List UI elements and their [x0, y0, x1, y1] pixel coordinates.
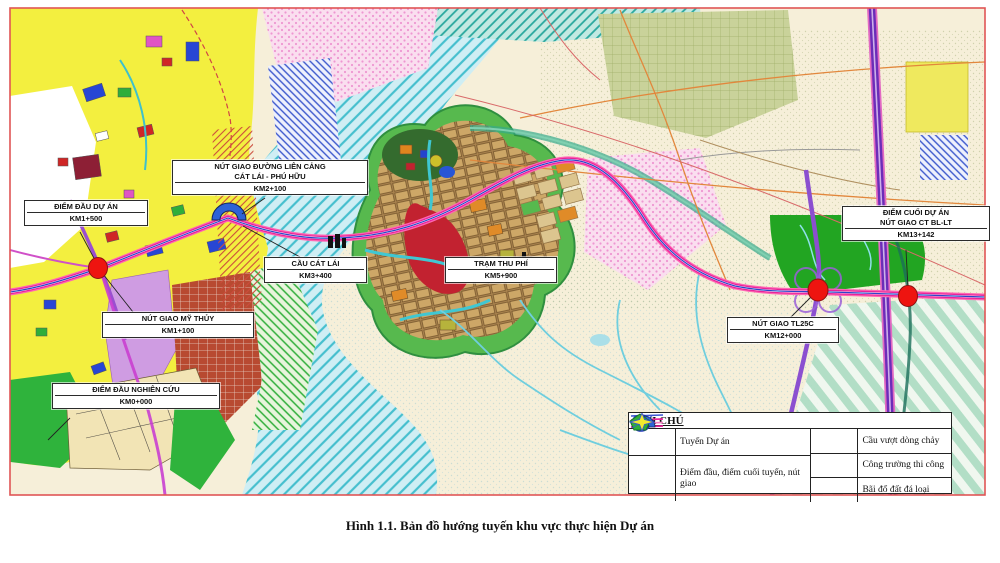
label-diem-cuoi-du-an: ĐIỂM CUỐI DỰ ÁN NÚT GIAO CT BL-LT KM13+1…	[842, 206, 990, 241]
node-tl25c	[808, 279, 828, 301]
legend-row-site: Công trường thi công	[811, 454, 951, 478]
legend-label: Điểm đầu, điểm cuối tuyến, nút giao	[676, 467, 810, 491]
label-cau-cat-lai: CẦU CÁT LÁI KM3+400	[264, 257, 367, 283]
label-km: KM0+000	[55, 396, 217, 407]
label-nut-giao-my-thuy: NÚT GIAO MỸ THỦY KM1+100	[102, 312, 254, 338]
label-tram-thu-phi: TRẠM THU PHÍ KM5+900	[445, 257, 557, 283]
label-text: CẦU CÁT LÁI	[267, 259, 364, 270]
label-km: KM5+900	[448, 270, 554, 281]
label-text: ĐIỂM ĐẦU DỰ ÁN	[27, 202, 145, 213]
pentagon-icon	[811, 454, 858, 477]
label-text: ĐIỂM ĐẦU NGHIÊN CỨU	[55, 385, 217, 396]
label-km: KM3+400	[267, 270, 364, 281]
label-text: CÁT LÁI - PHÚ HỮU	[175, 172, 365, 183]
red-dot-icon	[629, 456, 676, 501]
legend-label: Cầu vượt dòng chảy	[858, 435, 951, 448]
label-km: KM1+500	[27, 213, 145, 224]
label-diem-dau-du-an: ĐIỂM ĐẦU DỰ ÁN KM1+500	[24, 200, 148, 226]
label-text: NÚT GIAO MỸ THỦY	[105, 314, 251, 325]
label-km: KM1+100	[105, 325, 251, 336]
pond	[590, 334, 610, 346]
bridge-arch-icon	[811, 429, 858, 453]
dev-blob-pond	[439, 166, 455, 178]
node-start	[89, 258, 108, 279]
label-text: ĐIỂM CUỐI DỰ ÁN	[845, 208, 987, 218]
label-text: NÚT GIAO TL25C	[730, 319, 836, 330]
label-km: KM12+000	[730, 330, 836, 341]
label-km: KM13+142	[845, 229, 987, 240]
node-end	[899, 286, 918, 307]
legend-row-bridge: Cầu vượt dòng chảy	[811, 429, 951, 454]
label-nut-giao-lien-cang: NÚT GIAO ĐƯỜNG LIÊN CẢNG CÁT LÁI - PHÚ H…	[172, 160, 368, 195]
legend: GHI CHÚ Tuyến Dự án	[628, 412, 952, 494]
label-text: TRẠM THU PHÍ	[448, 259, 554, 270]
label-text: NÚT GIAO CT BL-LT	[845, 218, 987, 229]
legend-label: Bãi đổ đất đá loại	[858, 484, 951, 497]
figure-caption: Hình 1.1. Bản đồ hướng tuyến khu vực thự…	[0, 518, 1000, 534]
yellow-block-right	[906, 62, 968, 132]
legend-row-route: Tuyến Dự án	[629, 429, 810, 456]
legend-label: Tuyến Dự án	[676, 436, 810, 449]
legend-grid: Tuyến Dự án Điểm đầu, điểm cuối tuyến, n…	[629, 428, 951, 502]
label-text: NÚT GIAO ĐƯỜNG LIÊN CẢNG	[175, 162, 365, 172]
label-km: KM2+100	[175, 183, 365, 194]
label-diem-dau-nghien-cuu: ĐIỂM ĐẦU NGHIÊN CỨU KM0+000	[52, 383, 220, 409]
label-nut-giao-tl25c: NÚT GIAO TL25C KM12+000	[727, 317, 839, 343]
legend-row-points: Điểm đầu, điểm cuối tuyến, nút giao	[629, 456, 810, 501]
star-icon	[811, 478, 858, 502]
legend-title: GHI CHÚ	[629, 413, 951, 428]
legend-row-dump: Bãi đổ đất đá loại	[811, 478, 951, 502]
figure-page: NÚT GIAO ĐƯỜNG LIÊN CẢNG CÁT LÁI - PHÚ H…	[0, 0, 1000, 563]
legend-label: Công trường thi công	[858, 459, 951, 472]
blue-hatch-right	[920, 135, 968, 180]
